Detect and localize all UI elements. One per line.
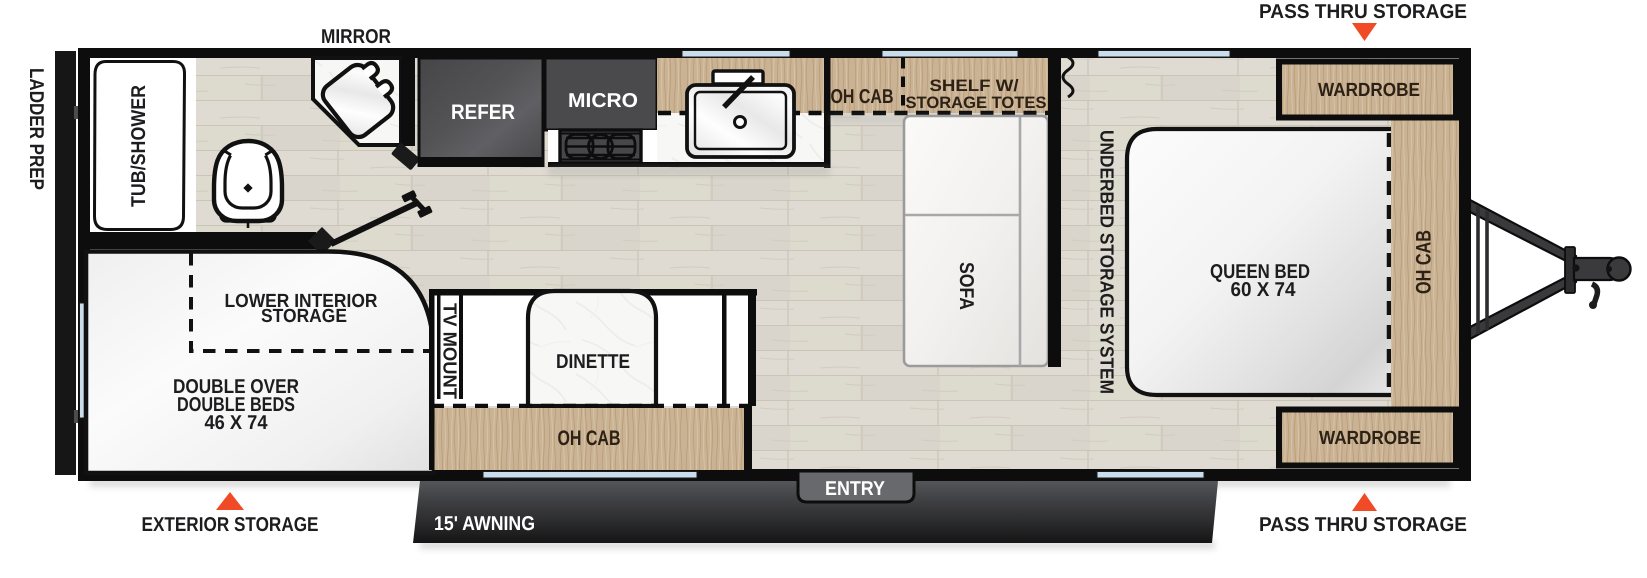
svg-text:WARDROBE: WARDROBE [1319, 428, 1421, 449]
svg-text:STORAGE TOTES: STORAGE TOTES [906, 94, 1047, 112]
svg-text:TUB/SHOWER: TUB/SHOWER [128, 85, 150, 207]
svg-text:LADDER PREP: LADDER PREP [25, 68, 47, 190]
svg-text:46 X 74: 46 X 74 [205, 412, 269, 434]
svg-text:UNDERBED STORAGE SYSTEM: UNDERBED STORAGE SYSTEM [1096, 130, 1117, 394]
svg-text:EXTERIOR STORAGE: EXTERIOR STORAGE [142, 514, 319, 536]
svg-text:DINETTE: DINETTE [556, 351, 630, 373]
svg-text:MIRROR: MIRROR [321, 26, 391, 48]
svg-text:PASS THRU STORAGE: PASS THRU STORAGE [1259, 514, 1467, 536]
svg-text:OH CAB: OH CAB [558, 427, 621, 450]
svg-text:OH CAB: OH CAB [1413, 230, 1436, 294]
svg-text:TV MOUNT: TV MOUNT [439, 303, 460, 399]
svg-text:PASS THRU STORAGE: PASS THRU STORAGE [1259, 1, 1467, 23]
svg-text:STORAGE: STORAGE [261, 306, 347, 327]
svg-text:60 X 74: 60 X 74 [1231, 279, 1297, 301]
svg-text:WARDROBE: WARDROBE [1318, 80, 1420, 101]
svg-text:MICRO: MICRO [568, 90, 638, 112]
svg-text:REFER: REFER [451, 101, 515, 124]
svg-text:15' AWNING: 15' AWNING [434, 513, 535, 535]
svg-text:SOFA: SOFA [955, 262, 977, 310]
svg-text:ENTRY: ENTRY [825, 478, 886, 500]
svg-text:SHELF W/: SHELF W/ [930, 77, 1019, 95]
svg-text:OH CAB: OH CAB [831, 86, 894, 108]
